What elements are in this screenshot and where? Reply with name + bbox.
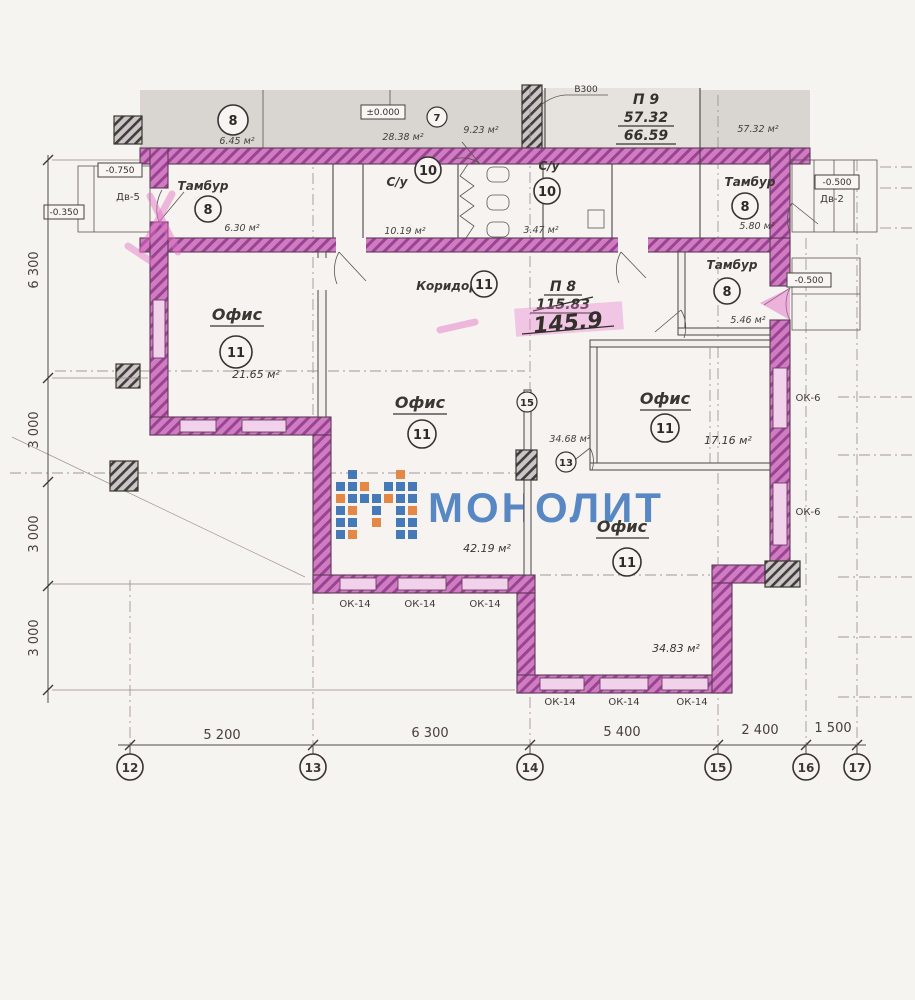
- room-area: 3.47 м²: [523, 225, 558, 236]
- p9-bottom: 66.59: [624, 128, 669, 144]
- room-number: 11: [227, 346, 245, 361]
- wall-spine: [524, 390, 531, 575]
- room-number: 8: [740, 200, 749, 215]
- room-label: Офис: [212, 305, 263, 324]
- door-tag: Дв-5: [116, 192, 140, 203]
- wall-tambur-right: [678, 252, 685, 332]
- axis-number: 15: [710, 761, 727, 775]
- room-number: 11: [656, 422, 674, 437]
- room-number: 8: [228, 114, 237, 129]
- dim-value: 6 300: [27, 251, 42, 288]
- wall-left-2: [313, 435, 331, 593]
- window-ok14: [340, 578, 376, 590]
- dim-value: 5 400: [603, 725, 640, 740]
- room-label: С/у: [386, 175, 408, 189]
- room-label: Коридор: [416, 279, 478, 293]
- window-tag: ОК-14: [469, 599, 500, 610]
- corner-pier: [765, 561, 800, 587]
- dim-value: 3 000: [27, 619, 42, 656]
- leader-note: В300: [574, 85, 598, 95]
- floor-plan-svg: МОНОЛИТ: [0, 0, 915, 1000]
- room-number: 10: [538, 185, 556, 200]
- wall-top: [140, 148, 810, 164]
- p9-room: [545, 88, 700, 148]
- window: [242, 420, 286, 432]
- room-area: 6.30 м²: [224, 223, 259, 234]
- door-gap: [317, 258, 327, 290]
- room-number: 8: [722, 285, 731, 300]
- dim-value: 1 500: [814, 721, 851, 736]
- door-gap: [618, 237, 648, 253]
- p8-label: П 8: [550, 279, 577, 295]
- room-label: Тамбур: [725, 175, 776, 189]
- room-area: 10.19 м²: [384, 226, 425, 237]
- floor-plan-scan: МОНОЛИТ: [0, 0, 915, 1000]
- window-tag: ОК-14: [404, 599, 435, 610]
- window: [153, 300, 165, 358]
- room-label: Офис: [395, 393, 446, 412]
- window-ok14: [398, 578, 446, 590]
- room-label: Тамбур: [178, 179, 229, 193]
- axis-number: 14: [522, 761, 539, 775]
- axis-number: 13: [305, 761, 322, 775]
- door-marker: 15: [520, 398, 534, 409]
- window-tag: ОК-14: [676, 697, 707, 708]
- axis-number: 16: [798, 761, 815, 775]
- room-number: 8: [203, 203, 212, 218]
- area-label: 57.32 м²: [737, 124, 778, 135]
- dim-value: 5 200: [203, 728, 240, 743]
- level-value: -0.500: [794, 276, 823, 286]
- window-ok6: [773, 483, 787, 545]
- window-tag: ОК-6: [796, 507, 821, 518]
- door-tag: Дв-2: [820, 194, 844, 205]
- room-area: 17.16 м²: [704, 434, 752, 447]
- level-value: ±0.000: [366, 108, 400, 118]
- wall-office-right-t: [590, 340, 770, 347]
- dim-value: 3 000: [27, 515, 42, 552]
- window-ok14: [600, 678, 648, 690]
- room-area: 42.19 м²: [463, 542, 511, 555]
- wall-left-upper: [150, 148, 168, 188]
- room-area: 21.65 м²: [232, 368, 280, 381]
- area-label: 9.23 м²: [463, 125, 498, 136]
- p9-top: 57.32: [624, 110, 668, 126]
- door-marker: 7: [434, 113, 441, 124]
- spine-pier: [516, 450, 537, 480]
- room-area: 5.46 м²: [730, 315, 765, 326]
- room-number: 11: [618, 556, 636, 571]
- level-value: -0.500: [822, 178, 851, 188]
- axis-bubbles: 12 13 14 15 16 17: [117, 745, 870, 780]
- wall-office-right-l: [590, 347, 597, 463]
- room-label: С/у: [538, 159, 560, 173]
- level-value: -0.350: [49, 208, 78, 218]
- room-label: Тамбур: [707, 258, 758, 272]
- wall-step: [150, 417, 331, 435]
- window-tag: ОК-14: [608, 697, 639, 708]
- dim-value: 2 400: [741, 723, 778, 738]
- room-number: 11: [413, 428, 431, 443]
- window-tag: ОК-6: [796, 393, 821, 404]
- stair-wall: [522, 85, 542, 148]
- wall-tambur-right-b: [678, 328, 770, 335]
- window-ok14: [662, 678, 708, 690]
- window: [180, 420, 216, 432]
- room-label: Офис: [640, 389, 691, 408]
- door-marker: 13: [559, 458, 573, 469]
- room-number: 10: [419, 164, 437, 179]
- room-label: Офис: [597, 517, 648, 536]
- door-gap: [336, 237, 366, 253]
- room-area: 34.83 м²: [652, 642, 700, 655]
- bottom-dimensions: 5 200 6 300 5 400 2 400 1 500 12 13 14 1…: [117, 721, 870, 780]
- axis-number: 17: [849, 761, 866, 775]
- wall-mid: [140, 238, 790, 252]
- window-tag: ОК-14: [339, 599, 370, 610]
- room-area: 5.80 м²: [739, 221, 774, 232]
- area-label: 28.38 м²: [382, 132, 423, 143]
- dim-value: 6 300: [411, 726, 448, 741]
- wall-right-low: [712, 583, 732, 693]
- area-label-mid: 34.68 м²: [549, 434, 590, 445]
- window-ok14: [540, 678, 584, 690]
- window-ok14: [462, 578, 508, 590]
- dim-value: 3 000: [27, 411, 42, 448]
- level-value: -0.750: [105, 166, 134, 176]
- axis-number: 12: [122, 761, 139, 775]
- window-ok6: [773, 368, 787, 428]
- p9-label: П 9: [633, 92, 660, 108]
- room-area: 6.45 м²: [219, 136, 254, 147]
- wall-office-right-b: [590, 463, 770, 470]
- window-tag: ОК-14: [544, 697, 575, 708]
- room-number: 11: [475, 278, 493, 293]
